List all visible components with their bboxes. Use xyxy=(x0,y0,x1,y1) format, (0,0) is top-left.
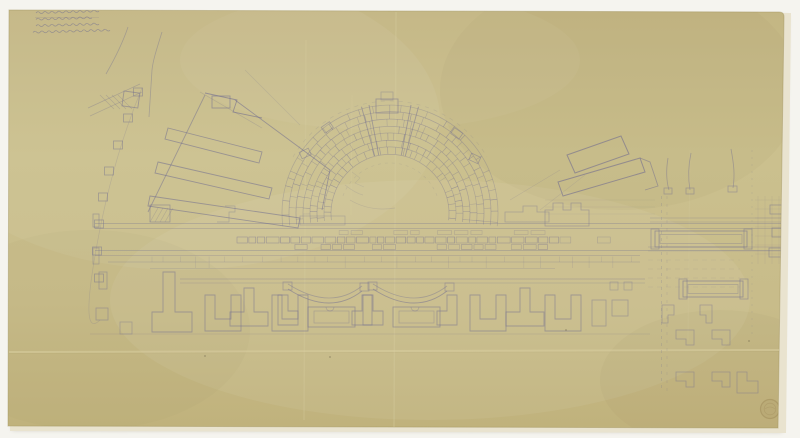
paper-speck xyxy=(204,355,206,357)
scanned-drawing xyxy=(0,0,800,438)
stamp-ring xyxy=(761,400,780,419)
paper-speck xyxy=(329,356,331,358)
paper-speck xyxy=(748,340,750,342)
embossed-stamp xyxy=(761,400,780,419)
site-plan-svg xyxy=(0,0,800,438)
paper-speck xyxy=(565,329,567,331)
